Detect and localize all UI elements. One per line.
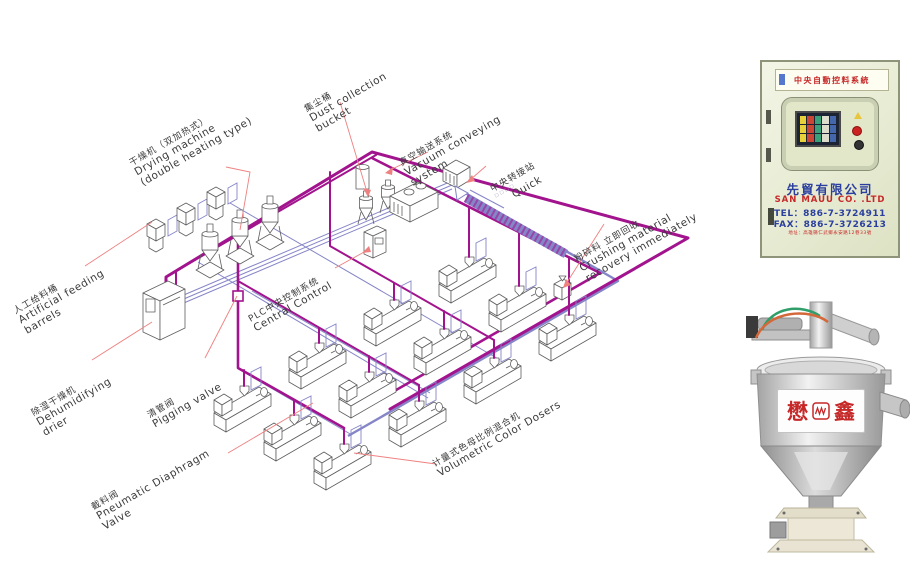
pedestal-base	[768, 508, 874, 552]
processing-machine-grid	[214, 238, 596, 490]
power-button	[854, 140, 864, 150]
red-button	[852, 126, 862, 136]
company-address: 地址：高雄縣仁武鄉永安路12巷33號	[762, 230, 898, 236]
control-cabinet-photo: 中央自動控料系統 先貿有限公司 SAN MAUU CO. .LTD TEL：88…	[760, 60, 900, 258]
plc-control-cabinet	[364, 226, 386, 258]
screenshot-root: 干燥机（双加热式） Drying machine (double heating…	[0, 0, 912, 562]
cabinet-sign: 中央自動控料系統	[775, 69, 889, 91]
inlet-pipes	[810, 302, 879, 348]
hinge-top	[766, 110, 771, 124]
brand-char-right: 鑫	[834, 396, 855, 426]
fax-number: FAX：886-7-3726213	[762, 217, 898, 230]
pigging-valve	[233, 291, 243, 301]
sign-chip	[779, 74, 785, 85]
touch-screen	[795, 111, 841, 147]
brand-char-left: 懋	[787, 396, 808, 426]
cabinet-sign-text: 中央自動控料系統	[794, 75, 870, 86]
brand-nameplate: 懋 鑫	[777, 389, 865, 433]
company-name-en: SAN MAUU CO. .LTD	[762, 195, 898, 205]
dehumidifying-drier	[143, 281, 185, 340]
brand-logo-icon	[812, 402, 830, 420]
cabinet-door-bezel	[782, 98, 878, 170]
indicator-lamp	[854, 112, 862, 119]
hinge-bottom	[766, 148, 771, 162]
hopper-cone	[761, 446, 881, 508]
